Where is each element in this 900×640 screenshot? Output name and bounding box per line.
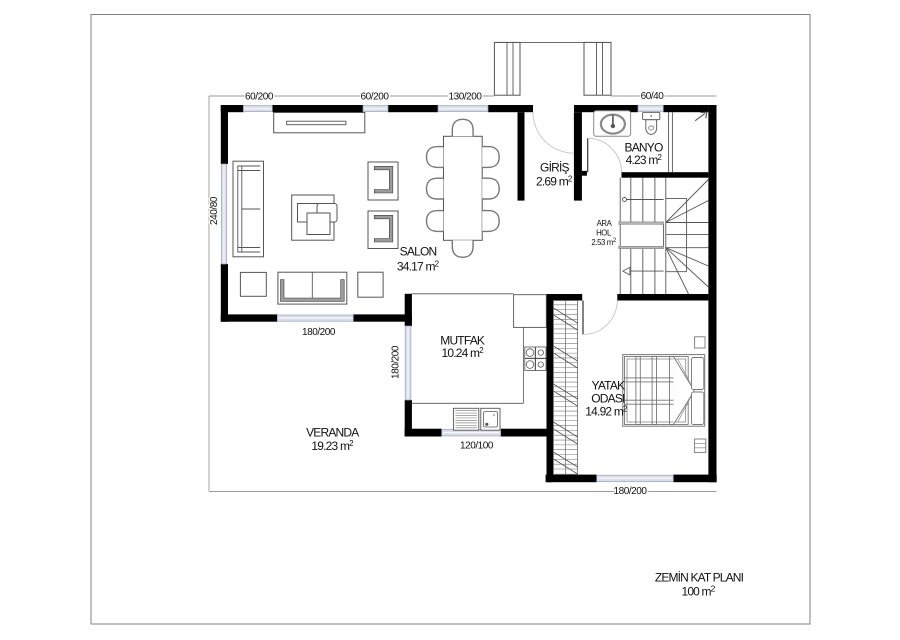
svg-text:VERANDA: VERANDA [306,426,359,440]
svg-text:34.17 m2: 34.17 m2 [397,259,440,273]
svg-text:HOL: HOL [596,229,612,238]
svg-text:GİRİŞ: GİRİŞ [540,160,569,174]
svg-text:ODASI: ODASI [591,391,625,405]
svg-text:60/200: 60/200 [245,92,274,103]
svg-text:2.69 m2: 2.69 m2 [536,175,573,189]
svg-text:14.92 m2: 14.92 m2 [585,404,628,418]
svg-text:100 m2: 100 m2 [682,583,716,598]
svg-text:19.23 m2: 19.23 m2 [311,439,354,453]
svg-text:10.24 m2: 10.24 m2 [441,346,484,360]
svg-text:60/40: 60/40 [641,91,665,102]
svg-text:ZEMİN KAT PLANI: ZEMİN KAT PLANI [655,570,744,584]
svg-text:60/200: 60/200 [361,92,390,103]
svg-text:4.23 m2: 4.23 m2 [626,153,663,167]
svg-text:180/200: 180/200 [390,345,401,379]
svg-text:180/200: 180/200 [614,486,648,497]
svg-text:180/200: 180/200 [302,327,336,338]
svg-text:130/200: 130/200 [449,92,483,103]
svg-text:ARA: ARA [597,219,613,228]
svg-text:240/80: 240/80 [209,196,220,225]
svg-text:SALON: SALON [400,245,437,259]
svg-text:120/100: 120/100 [460,440,494,451]
